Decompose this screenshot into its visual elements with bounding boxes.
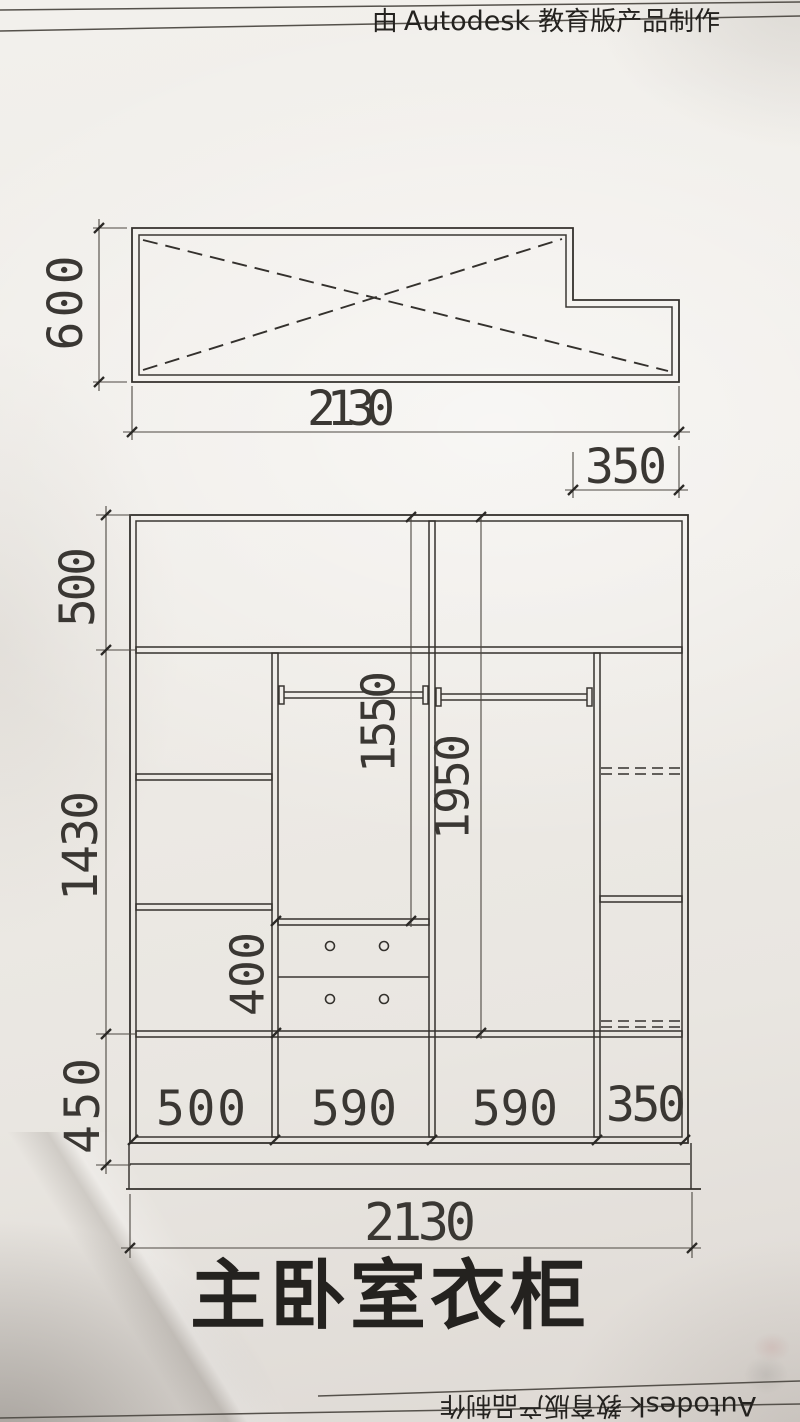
cabinet-outer-frame (130, 515, 688, 1143)
cabinet-base (126, 1143, 701, 1189)
column-width-3-label: 590 (472, 1081, 558, 1137)
rod-height-right-label: 1950 (426, 734, 480, 840)
column-width-chain: 500 590 590 350 (128, 1077, 690, 1145)
column-width-4-label: 350 (606, 1077, 686, 1133)
plan-dim-total-width: 2130 (123, 381, 690, 440)
left-column-shelf-2 (136, 904, 272, 910)
dim-rod-height-1550: 1550 (352, 512, 417, 927)
drawer-knob (380, 995, 389, 1004)
header-brand: Autodesk (404, 6, 531, 37)
footer-suffix: 教育版产品制作 (440, 1390, 622, 1420)
plan-view: 600 2130 350 (38, 219, 690, 498)
drawer-knob (326, 995, 335, 1004)
elevation-middle-height-label: 1430 (53, 791, 109, 901)
column-width-2-label: 590 (311, 1081, 397, 1137)
elevation-left-dim-chain: 500 1430 450 (50, 506, 137, 1174)
header-byline: 由Autodesk教育版产品制作 (372, 6, 720, 37)
elevation-width-label: 2130 (364, 1193, 476, 1253)
drawer-knob (380, 942, 389, 951)
drawer-height-label: 400 (221, 932, 275, 1016)
plan-outline-inner (139, 235, 672, 375)
photographed-cad-drawing: 由Autodesk教育版产品制作 600 (0, 0, 800, 1422)
drawer-unit (278, 919, 429, 1004)
partition-col3-col4 (594, 653, 600, 1137)
drawer-knob (326, 942, 335, 951)
hanging-rod-right (436, 688, 592, 706)
drawing-title: 主卧室衣柜 (190, 1251, 590, 1340)
column-width-1-label: 500 (156, 1081, 246, 1137)
cad-drawing-svg: 由Autodesk教育版产品制作 600 (0, 0, 800, 1422)
footer-byline: Autodesk教育版产品制作 (440, 1390, 756, 1421)
plan-right-section-label: 350 (585, 439, 667, 495)
elevation-dim-total-width: 2130 (121, 1192, 701, 1258)
elevation-top-height-label: 500 (50, 547, 106, 627)
rod-height-left-label: 1550 (352, 671, 406, 773)
footer-brand: Autodesk (630, 1390, 757, 1421)
partition-col1-col2 (272, 653, 278, 1137)
right-column-shelves (600, 768, 682, 1027)
plan-width-label: 2130 (307, 381, 395, 437)
top-section-shelf (136, 647, 682, 653)
plan-dim-right-section: 350 (565, 439, 688, 498)
rod-end-flange (587, 688, 592, 706)
header-prefix: 由 (372, 7, 398, 37)
plan-diagonal-1 (143, 240, 668, 371)
left-column-shelf-1 (136, 774, 272, 780)
right-column-fixed-shelf (600, 896, 682, 902)
plan-depth-label: 600 (38, 256, 94, 351)
rod-end-flange (423, 686, 428, 704)
elevation-bottom-height-label: 450 (55, 1058, 111, 1154)
plan-outline-outer (132, 228, 679, 382)
footer-banner-group: Autodesk教育版产品制作 (440, 1390, 756, 1421)
plan-diagonal-2 (143, 239, 562, 370)
rod-end-flange (279, 686, 284, 704)
header-suffix: 教育版产品制作 (538, 7, 720, 37)
elevation-view: 500 1430 450 1550 1950 (50, 506, 701, 1258)
rod-end-flange (436, 688, 441, 706)
plan-dim-depth: 600 (38, 219, 127, 391)
